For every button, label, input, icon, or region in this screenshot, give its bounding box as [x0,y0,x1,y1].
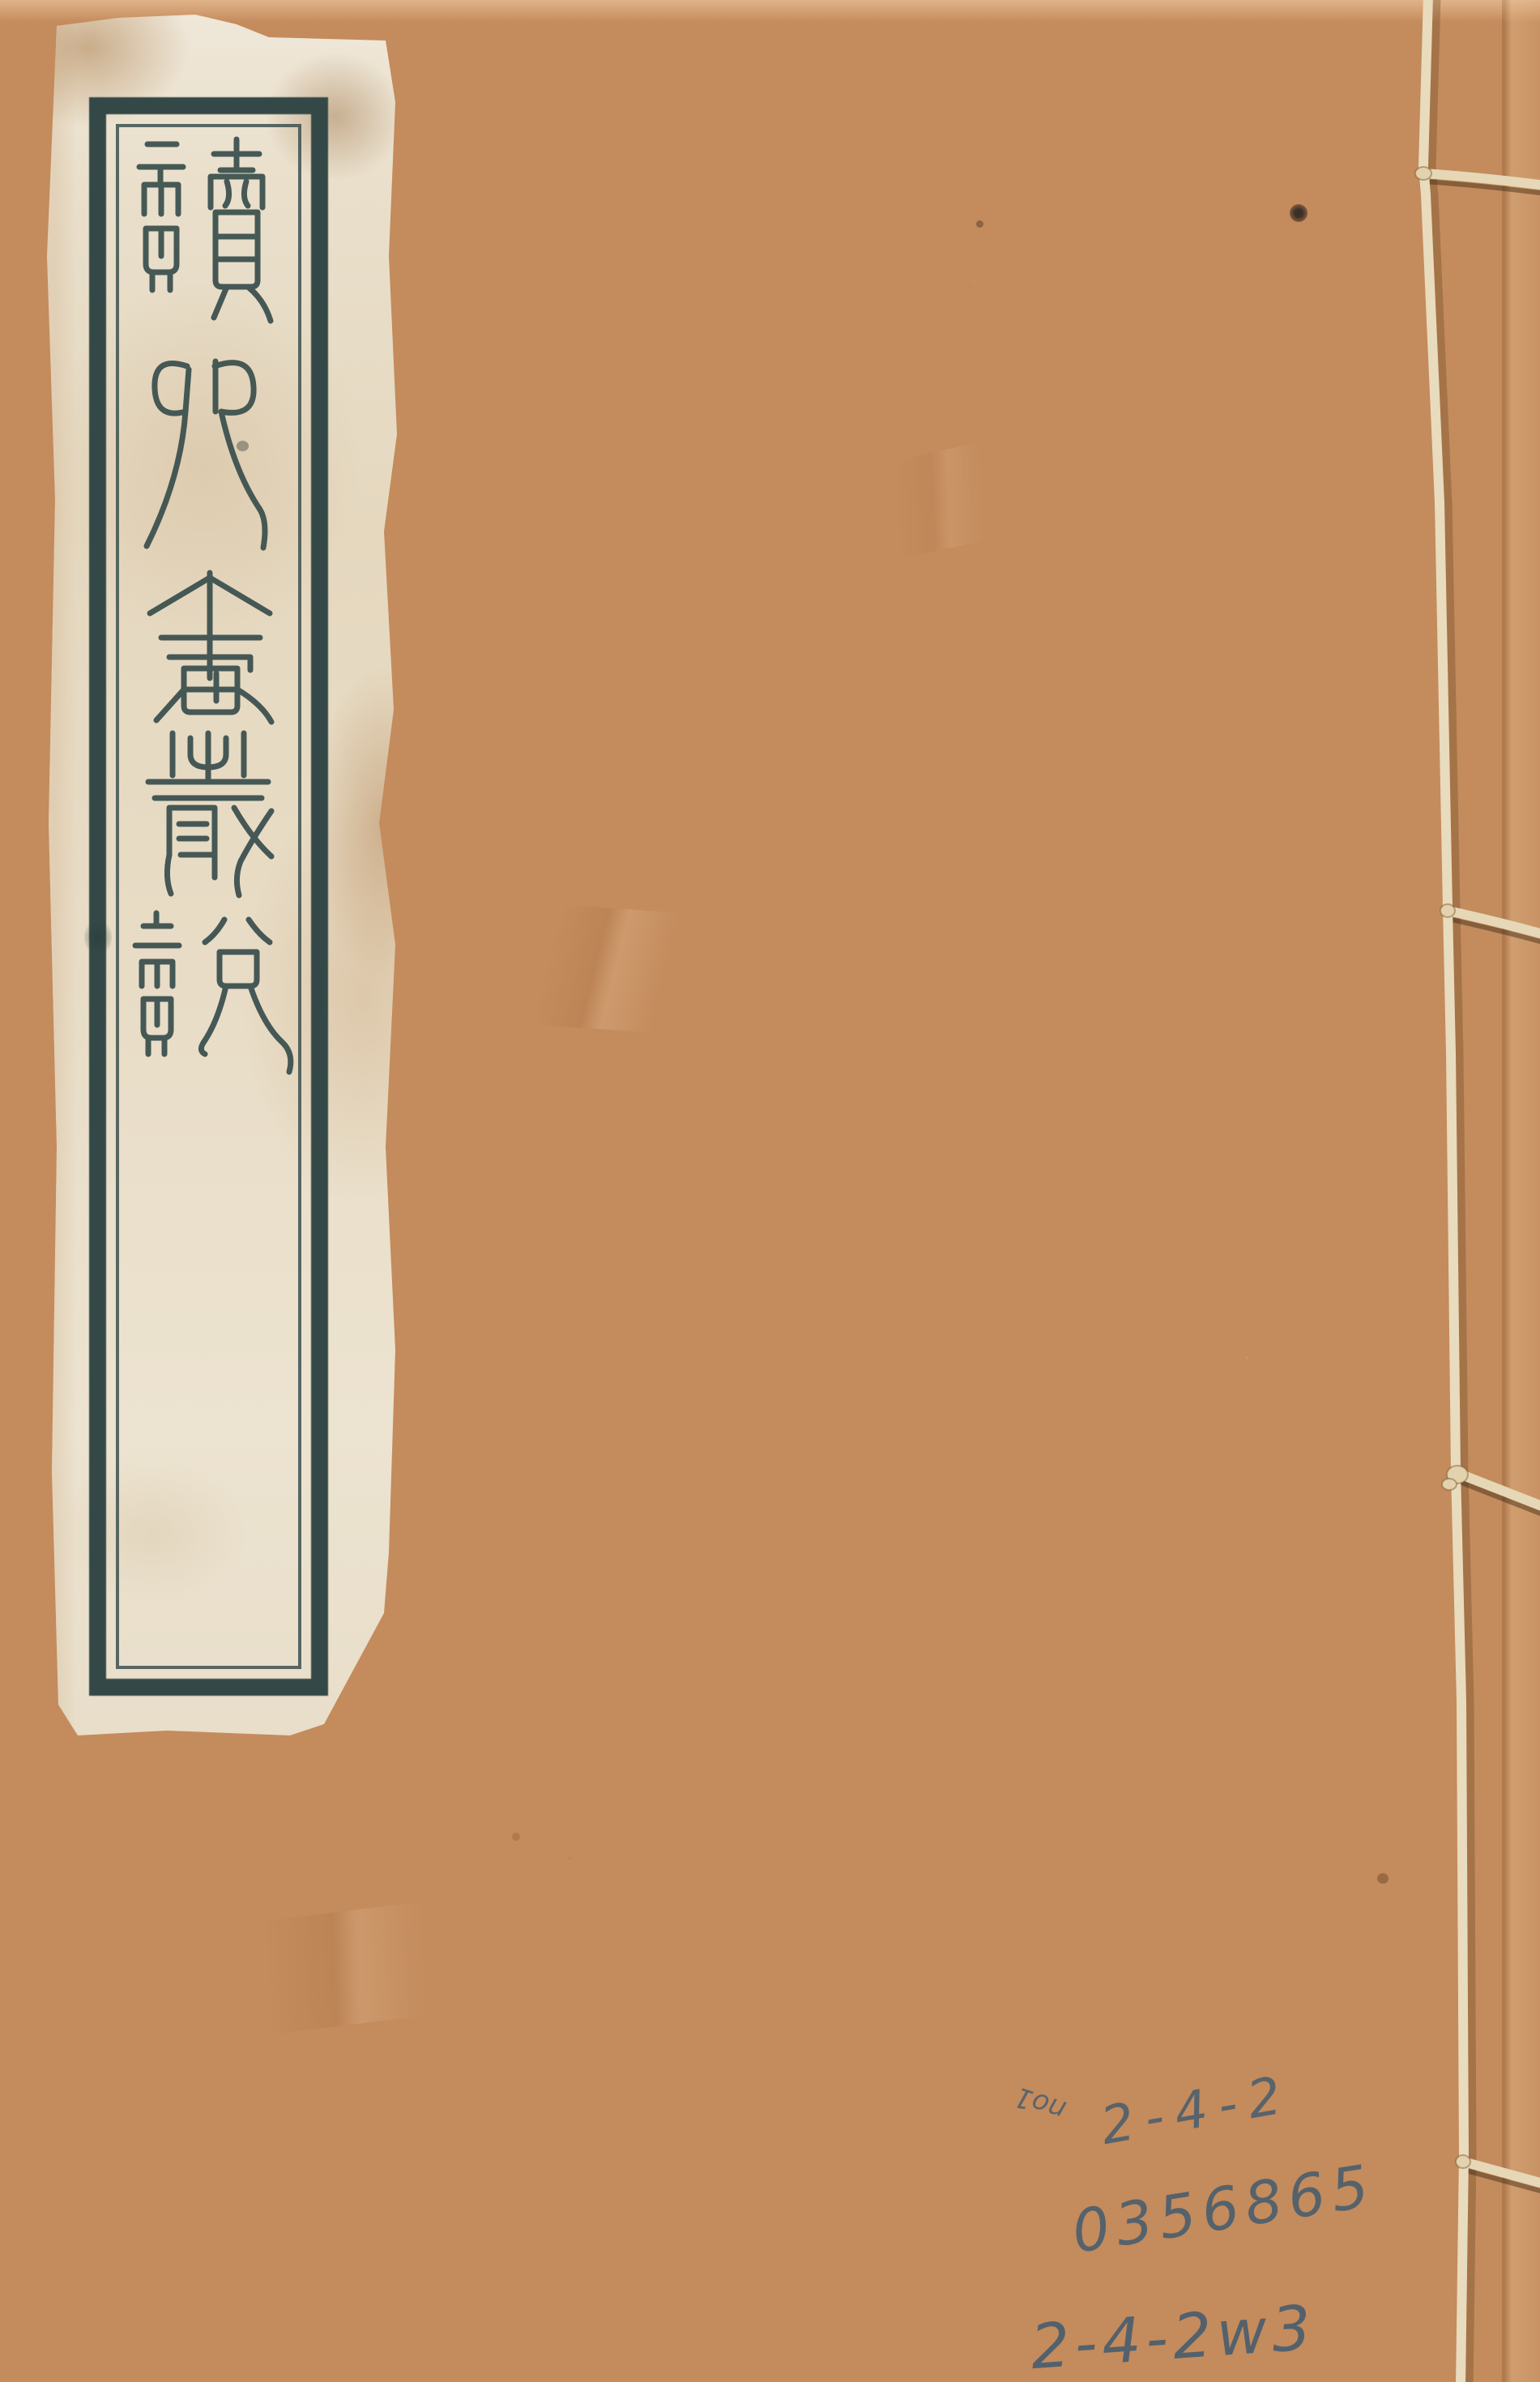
stitch-thread-3 [1457,1473,1540,1505]
thread-knot [1415,167,1431,180]
book-cover-scan: 讀四書叢說 [0,0,1540,2382]
thread-knot [1442,1479,1457,1490]
thread-knot [1440,904,1455,917]
binding-threads [0,0,1540,2382]
thread-knot [1456,2155,1470,2168]
